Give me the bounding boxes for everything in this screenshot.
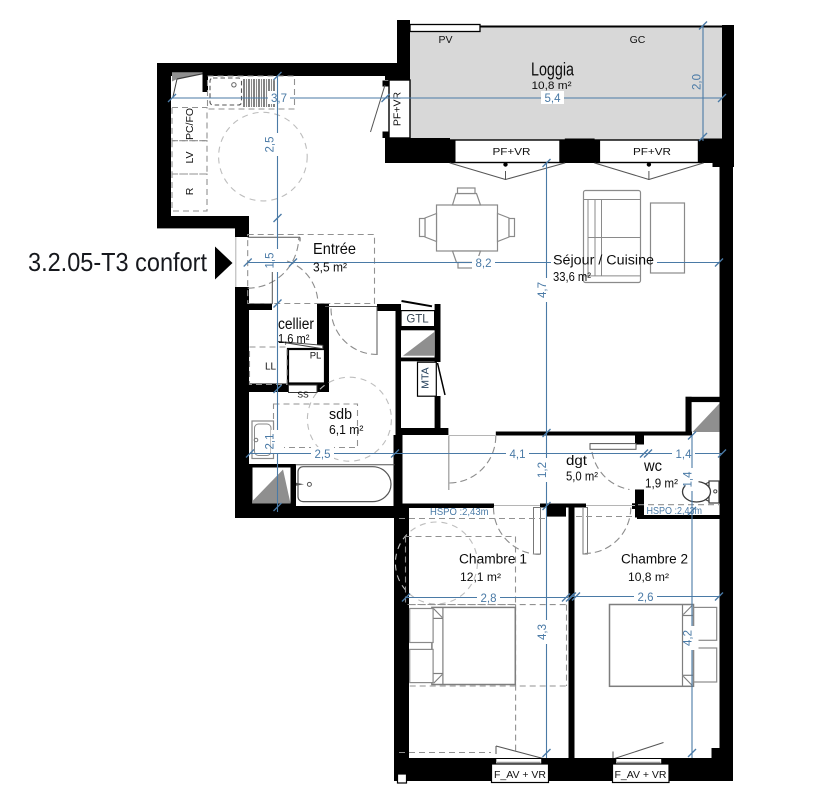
svg-text:PF+VR: PF+VR bbox=[392, 92, 404, 127]
svg-text:8,2: 8,2 bbox=[476, 258, 492, 270]
svg-text:Loggia: Loggia bbox=[531, 60, 575, 80]
svg-text:1,2: 1,2 bbox=[537, 462, 549, 478]
svg-text:33,6 m²: 33,6 m² bbox=[553, 270, 591, 284]
svg-text:6,1 m²: 6,1 m² bbox=[329, 423, 364, 437]
svg-text:SS: SS bbox=[297, 390, 309, 400]
svg-text:F_AV + VR: F_AV + VR bbox=[614, 769, 666, 781]
svg-text:10,8 m²: 10,8 m² bbox=[628, 572, 669, 584]
svg-text:3,7: 3,7 bbox=[271, 93, 287, 105]
svg-text:3,5 m²: 3,5 m² bbox=[313, 261, 347, 275]
svg-text:1,5: 1,5 bbox=[265, 253, 277, 269]
svg-text:2,8: 2,8 bbox=[481, 593, 497, 605]
svg-text:HSPO :2,43m: HSPO :2,43m bbox=[647, 505, 703, 517]
svg-text:2,5: 2,5 bbox=[265, 137, 277, 153]
svg-text:4,3: 4,3 bbox=[537, 624, 549, 640]
svg-text:1,9 m²: 1,9 m² bbox=[645, 477, 678, 491]
svg-text:dgt: dgt bbox=[566, 452, 587, 468]
svg-text:12,1 m²: 12,1 m² bbox=[460, 572, 501, 584]
svg-text:GTL: GTL bbox=[406, 314, 429, 326]
svg-text:F_AV + VR: F_AV + VR bbox=[494, 769, 546, 781]
svg-text:1,6 m²: 1,6 m² bbox=[278, 331, 310, 346]
svg-text:1,4: 1,4 bbox=[676, 449, 693, 461]
svg-text:Entrée: Entrée bbox=[313, 241, 356, 258]
svg-text:PC/FO: PC/FO bbox=[184, 108, 196, 140]
svg-text:5,0 m²: 5,0 m² bbox=[566, 470, 598, 484]
svg-text:LV: LV bbox=[184, 151, 196, 163]
svg-text:2,0: 2,0 bbox=[692, 74, 704, 90]
svg-text:HSPO :2,43m: HSPO :2,43m bbox=[430, 506, 489, 518]
svg-text:wc: wc bbox=[643, 458, 662, 475]
svg-text:Chambre 2: Chambre 2 bbox=[621, 552, 688, 567]
svg-text:PL: PL bbox=[310, 351, 322, 362]
svg-text:4,2: 4,2 bbox=[683, 630, 695, 646]
svg-text:MTA: MTA bbox=[420, 367, 432, 388]
svg-text:Séjour / Cuisine: Séjour / Cuisine bbox=[553, 253, 654, 268]
svg-text:5,4: 5,4 bbox=[545, 93, 562, 105]
svg-text:4,7: 4,7 bbox=[537, 282, 549, 298]
svg-text:sdb: sdb bbox=[329, 406, 352, 423]
svg-text:10,8 m²: 10,8 m² bbox=[532, 80, 572, 92]
svg-text:2,1: 2,1 bbox=[265, 434, 277, 450]
svg-text:1,4: 1,4 bbox=[683, 471, 695, 488]
svg-text:2,6: 2,6 bbox=[638, 592, 654, 604]
svg-text:GC: GC bbox=[630, 34, 646, 46]
svg-text:PF+VR: PF+VR bbox=[633, 146, 671, 158]
svg-text:2,5: 2,5 bbox=[315, 449, 331, 461]
svg-text:3.2.05-T3 confort: 3.2.05-T3 confort bbox=[28, 247, 208, 277]
svg-text:PV: PV bbox=[438, 34, 452, 46]
svg-text:4,1: 4,1 bbox=[510, 449, 526, 461]
svg-text:LL: LL bbox=[265, 362, 277, 373]
svg-text:R: R bbox=[184, 187, 196, 195]
svg-text:Chambre 1: Chambre 1 bbox=[459, 552, 527, 567]
svg-text:PF+VR: PF+VR bbox=[493, 146, 531, 158]
